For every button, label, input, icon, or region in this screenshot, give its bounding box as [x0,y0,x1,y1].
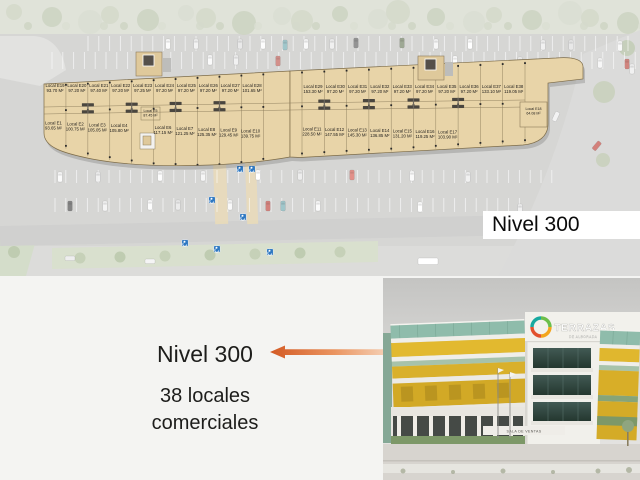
arrow-shape [270,346,398,359]
local-unit-label-local-e35: Local E3597.20 M² [437,84,457,94]
local-unit-label-local-e27: Local E2797.20 M² [221,83,241,93]
local-unit-label-local-e25: Local E2597.20 M² [177,83,197,93]
svg-text:117.15 M²: 117.15 M² [153,130,173,135]
local-unit-label-local-e36: Local E3697.20 M² [460,84,480,94]
svg-text:97.20 M²: 97.20 M² [156,88,174,93]
site-plan: Local E193.65 M²Local E2100.75 M²Local E… [0,0,640,276]
local-unit-label-local-e7: Local E7121.25 M² [175,126,195,136]
svg-text:103.90 M²: 103.90 M² [438,135,458,140]
local-unit-label-local-e32: Local E3297.20 M² [370,84,390,94]
local-unit-label-local-e8: Local E8125.35 M² [197,127,217,137]
logo-subtext: DE ALBORADA [569,335,598,339]
local-unit-label-local-e23: Local E2397.25 M² [133,83,153,93]
svg-text:Local E18: Local E18 [526,107,542,111]
svg-text:145.30 M²: 145.30 M² [348,133,368,138]
local-unit-label-local-e15: Local E15131.20 M² [393,129,413,139]
svg-text:105.05 M²: 105.05 M² [88,127,108,132]
svg-text:93.65 M²: 93.65 M² [45,126,63,131]
local-unit-label-local-e29: Local E29153.30 M² [303,84,323,94]
local-unit-label-local-e11: Local E11228.50 M² [302,127,322,137]
svg-text:97.20 M²: 97.20 M² [371,89,389,94]
svg-text:64.08 M²: 64.08 M² [526,112,541,116]
svg-text:93.70 M²: 93.70 M² [47,88,65,93]
hedge [391,436,525,444]
svg-text:87.45 M²: 87.45 M² [143,114,158,118]
notch-kiosk [143,136,151,145]
svg-text:97.20 M²: 97.20 M² [394,89,412,94]
building-photo: TERRAZAS DE ALBORADA [383,278,640,480]
svg-text:97.20 M²: 97.20 M² [112,88,130,93]
svg-text:101.65 M²: 101.65 M² [242,88,262,93]
local-unit-label-local-e2: Local E2100.75 M² [66,121,86,131]
svg-text:136.85 M²: 136.85 M² [370,133,390,138]
svg-text:131.20 M²: 131.20 M² [393,134,413,139]
local-unit-label-local-e13: Local E13145.30 M² [348,128,368,138]
local-unit-label-local-e9: Local E9129.45 M² [219,128,239,138]
nivel-300-badge-text: Nivel 300 [492,213,580,237]
callout-arrow [268,343,400,361]
svg-text:97.20 M²: 97.20 M² [222,88,240,93]
local-unit-label-local-e28: Local E28101.65 M² [242,83,262,93]
svg-text:105.80 M²: 105.80 M² [110,128,130,133]
local-unit-label-local-e5: Local E587.45 M² [143,109,158,118]
local-unit-label-local-e12: Local E12147.55 M² [325,127,345,137]
left-building-block [390,319,527,413]
white-fence [383,464,640,473]
local-unit-label-local-e17: Local E17103.90 M² [438,130,458,140]
svg-text:228.50 M²: 228.50 M² [302,132,322,137]
local-unit-label-local-e19: Local E1993.70 M² [45,83,65,93]
svg-text:97.20 M²: 97.20 M² [178,88,196,93]
svg-text:97.20 M²: 97.20 M² [68,88,86,93]
svg-text:Local E5: Local E5 [144,109,158,113]
pavement [383,444,640,480]
local-unit-label-local-e10: Local E10139.75 M² [241,129,261,139]
local-unit-label-local-e1: Local E193.65 M² [45,121,63,131]
svg-text:133.10 M²: 133.10 M² [482,89,502,94]
svg-text:119.25 M²: 119.25 M² [415,134,435,139]
local-unit-label-local-e34: Local E3497.20 M² [415,84,435,94]
ventas-sign-text: SALA DE VENTAS [507,430,542,434]
local-unit-label-local-e3: Local E3105.05 M² [88,122,108,132]
svg-text:97.20 M²: 97.20 M² [200,88,218,93]
svg-text:97.20 M²: 97.20 M² [416,89,434,94]
local-unit-label-local-e4: Local E4105.80 M² [110,123,130,133]
svg-text:153.30 M²: 153.30 M² [303,89,323,94]
svg-text:97.25 M²: 97.25 M² [134,88,152,93]
local-unit-label-local-e24: Local E2497.20 M² [155,83,175,93]
callout-line1: 38 locales [110,385,300,408]
svg-text:97.20 M²: 97.20 M² [438,89,456,94]
local-unit-label-local-e37: Local E37133.10 M² [482,84,502,94]
svg-text:121.25 M²: 121.25 M² [175,131,195,136]
svg-text:100.75 M²: 100.75 M² [66,126,86,131]
building-photo-canvas: TERRAZAS DE ALBORADA [383,278,640,480]
svg-text:97.20 M²: 97.20 M² [461,89,479,94]
local-unit-label-local-e20: Local E2097.20 M² [67,83,87,93]
svg-text:129.45 M²: 129.45 M² [219,133,239,138]
local-unit-label-local-e26: Local E2697.20 M² [199,83,219,93]
svg-text:139.75 M²: 139.75 M² [241,134,261,139]
local-unit-label-local-e33: Local E3397.20 M² [393,84,413,94]
svg-text:147.55 M²: 147.55 M² [325,132,345,137]
callout-line2: comerciales [100,412,310,435]
local-unit-label-local-e38: Local E38119.05 M² [504,84,524,94]
far-left-glass-edge [383,333,392,443]
local-unit-label-local-e31: Local E3197.20 M² [348,84,368,94]
tower-balconies [531,348,593,425]
local-unit-label-local-e18: Local E1864.08 M² [526,107,542,116]
slide-root: Local E193.65 M²Local E2100.75 M²Local E… [0,0,640,480]
svg-text:97.20 M²: 97.20 M² [349,89,367,94]
local-unit-label-local-e21: Local E2197.40 M² [89,83,109,93]
local-unit-label-local-e16: Local E16119.25 M² [415,129,435,139]
local-unit-label-local-e14: Local E14136.85 M² [370,128,390,138]
local-unit-label-local-e6: Local E6117.15 M² [153,125,173,135]
svg-text:119.05 M²: 119.05 M² [504,89,524,94]
nivel-300-badge: Nivel 300 [483,211,640,239]
local-unit-label-local-e30: Local E3097.20 M² [326,84,346,94]
svg-text:97.20 M²: 97.20 M² [327,89,345,94]
svg-text:97.40 M²: 97.40 M² [90,88,108,93]
local-unit-label-local-e22: Local E2297.20 M² [111,83,131,93]
svg-text:125.35 M²: 125.35 M² [197,132,217,137]
